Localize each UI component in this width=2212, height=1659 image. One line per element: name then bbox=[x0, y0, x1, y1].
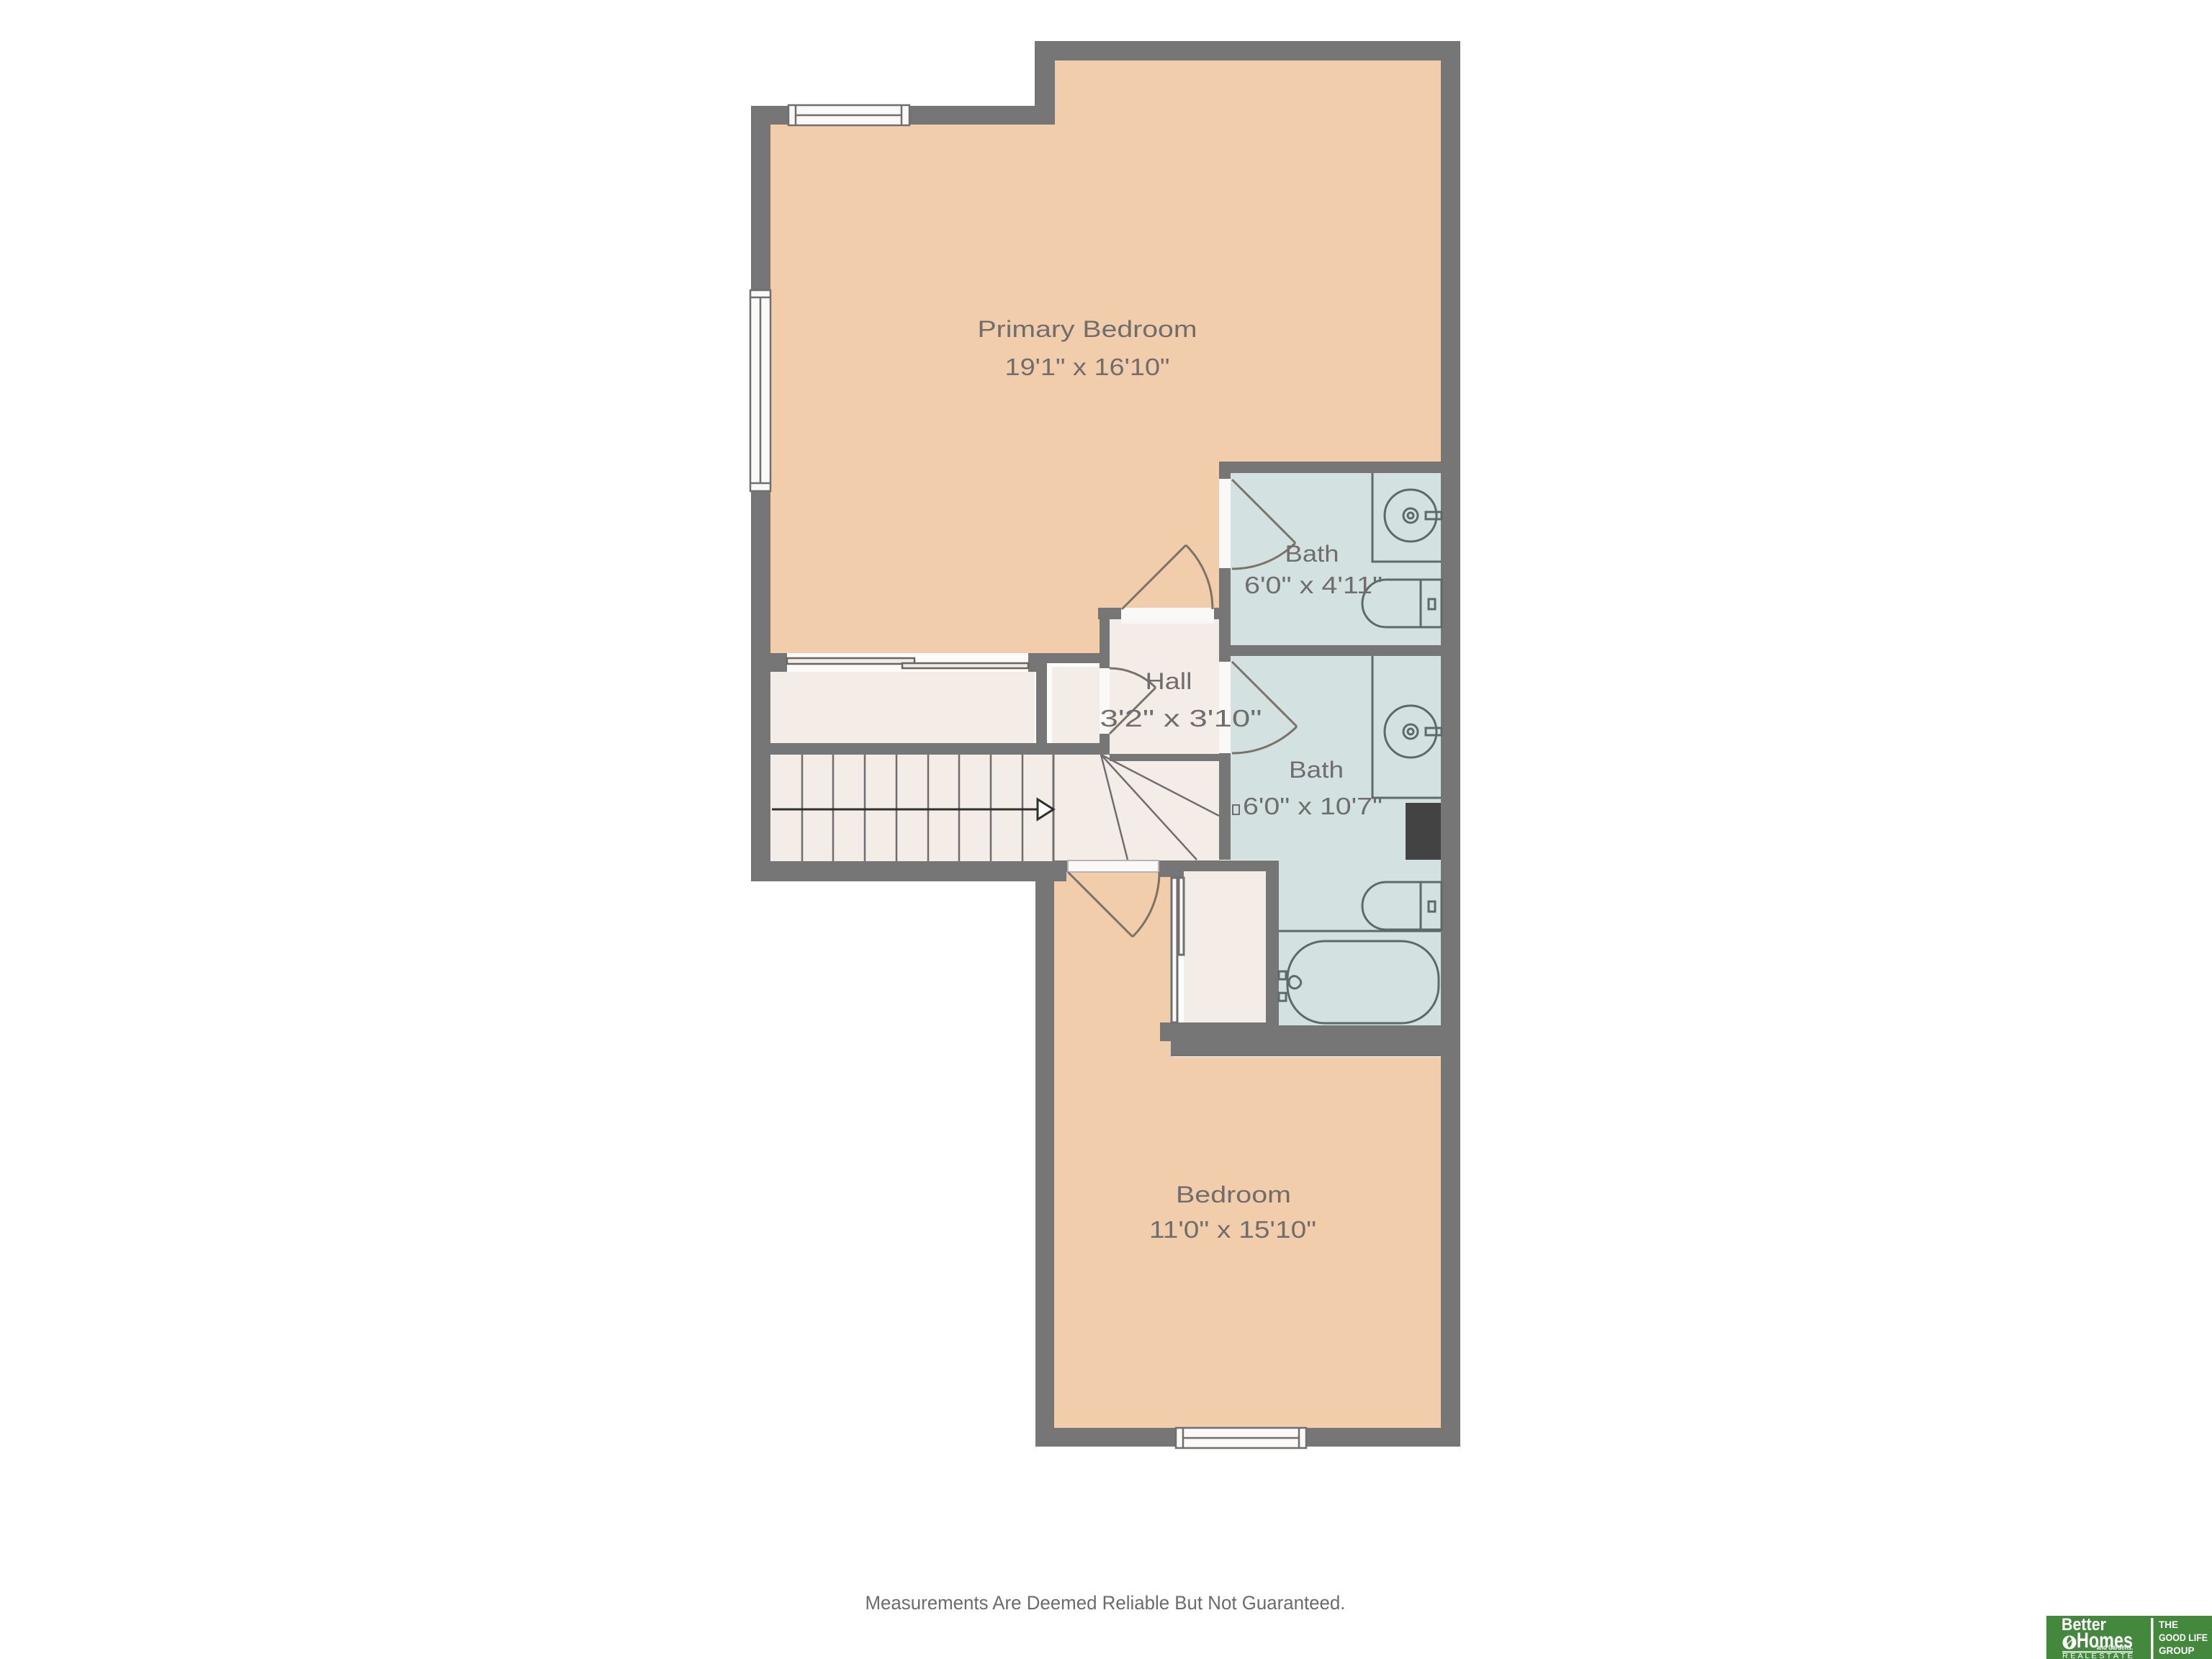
svg-text:THE: THE bbox=[2159, 1619, 2178, 1630]
svg-text:3'2" x 3'10": 3'2" x 3'10" bbox=[1100, 705, 1262, 732]
svg-text:6'0" x 10'7": 6'0" x 10'7" bbox=[1243, 793, 1382, 819]
svg-text:GROUP: GROUP bbox=[2159, 1645, 2195, 1656]
svg-text:R E A L E S T A T E: R E A L E S T A T E bbox=[2062, 1653, 2133, 1659]
svg-text:Bath: Bath bbox=[1285, 541, 1339, 567]
svg-text:11'0" x 15'10": 11'0" x 15'10" bbox=[1149, 1216, 1316, 1243]
svg-text:19'1" x 16'10": 19'1" x 16'10" bbox=[1005, 354, 1170, 380]
svg-text:6'0" x 4'11": 6'0" x 4'11" bbox=[1244, 572, 1382, 598]
svg-text:Primary Bedroom: Primary Bedroom bbox=[978, 316, 1197, 342]
svg-text:Bath: Bath bbox=[1289, 757, 1344, 783]
svg-text:GOOD LIFE: GOOD LIFE bbox=[2159, 1632, 2208, 1643]
svg-text:Measurements Are Deemed Reliab: Measurements Are Deemed Reliable But Not… bbox=[866, 1592, 1346, 1614]
svg-text:Bedroom: Bedroom bbox=[1176, 1182, 1291, 1208]
svg-text:Hall: Hall bbox=[1146, 668, 1192, 694]
svg-text:and Gardens.: and Gardens. bbox=[2097, 1643, 2133, 1652]
